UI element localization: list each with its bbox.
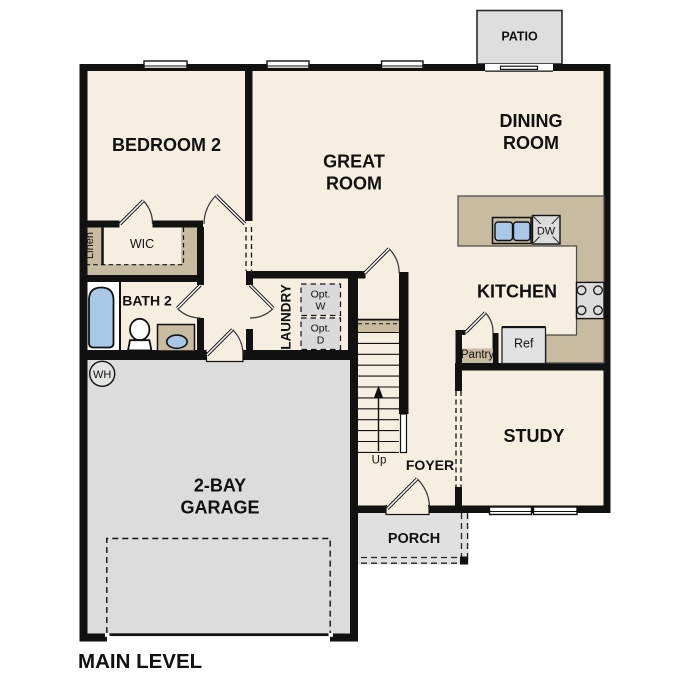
svg-text:GARAGE: GARAGE [180, 498, 259, 518]
svg-text:DINING: DINING [500, 111, 563, 131]
svg-text:Opt.: Opt. [311, 289, 331, 301]
svg-text:BATH 2: BATH 2 [122, 293, 172, 309]
svg-text:WH: WH [93, 369, 111, 381]
svg-text:DW: DW [537, 226, 556, 238]
svg-text:GREAT: GREAT [323, 152, 385, 172]
svg-text:BEDROOM 2: BEDROOM 2 [112, 135, 221, 155]
svg-text:STUDY: STUDY [503, 426, 564, 446]
svg-text:Ref: Ref [514, 337, 534, 351]
svg-text:PATIO: PATIO [501, 30, 538, 44]
svg-text:KITCHEN: KITCHEN [477, 282, 557, 302]
svg-text:Up: Up [372, 455, 387, 467]
svg-text:LAUNDRY: LAUNDRY [279, 284, 294, 350]
svg-text:2-BAY: 2-BAY [194, 476, 246, 496]
svg-text:D: D [317, 335, 325, 347]
svg-text:ROOM: ROOM [326, 174, 382, 194]
svg-text:Opt.: Opt. [311, 323, 331, 335]
svg-text:WIC: WIC [130, 237, 154, 251]
svg-text:PORCH: PORCH [388, 531, 440, 547]
svg-text:MAIN LEVEL: MAIN LEVEL [78, 650, 202, 673]
svg-text:ROOM: ROOM [503, 133, 559, 153]
svg-text:FOYER: FOYER [406, 457, 454, 473]
svg-text:W: W [316, 301, 326, 313]
svg-text:Pantry: Pantry [461, 349, 494, 361]
